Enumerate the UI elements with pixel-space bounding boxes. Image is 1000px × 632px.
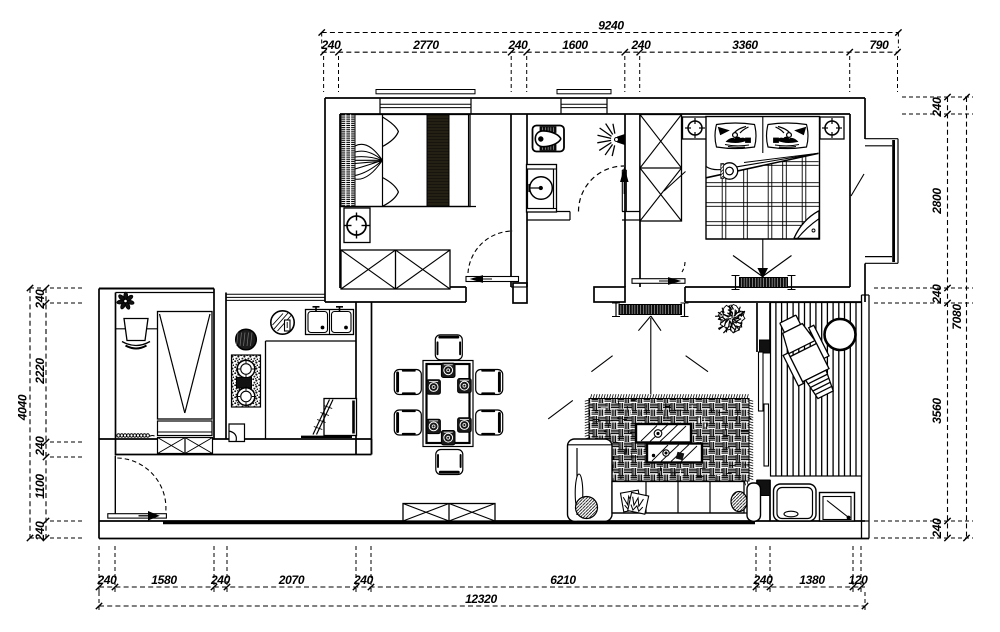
svg-text:240: 240 (630, 38, 651, 52)
svg-text:1580: 1580 (151, 573, 177, 587)
svg-text:240: 240 (353, 573, 374, 587)
svg-text:240: 240 (507, 38, 528, 52)
svg-text:2800: 2800 (930, 188, 944, 215)
svg-text:240: 240 (930, 97, 944, 118)
svg-text:240: 240 (930, 284, 944, 305)
svg-text:3560: 3560 (930, 398, 944, 424)
svg-text:12320: 12320 (465, 592, 497, 606)
svg-text:240: 240 (752, 573, 773, 587)
svg-text:790: 790 (869, 38, 889, 52)
svg-text:120: 120 (848, 573, 868, 587)
svg-text:240: 240 (33, 289, 47, 310)
svg-text:240: 240 (930, 518, 944, 539)
svg-text:240: 240 (320, 38, 341, 52)
svg-text:2770: 2770 (412, 38, 439, 52)
svg-text:240: 240 (96, 573, 117, 587)
svg-text:2070: 2070 (278, 573, 305, 587)
svg-text:240: 240 (210, 573, 231, 587)
svg-text:3360: 3360 (732, 38, 758, 52)
svg-text:2220: 2220 (33, 358, 47, 385)
svg-text:1100: 1100 (33, 474, 47, 499)
svg-text:6210: 6210 (550, 573, 576, 587)
svg-text:1380: 1380 (799, 573, 825, 587)
svg-text:9240: 9240 (598, 19, 624, 33)
svg-text:7080: 7080 (950, 304, 964, 330)
svg-text:240: 240 (33, 436, 47, 457)
svg-text:4040: 4040 (16, 394, 30, 421)
svg-text:1600: 1600 (562, 38, 588, 52)
